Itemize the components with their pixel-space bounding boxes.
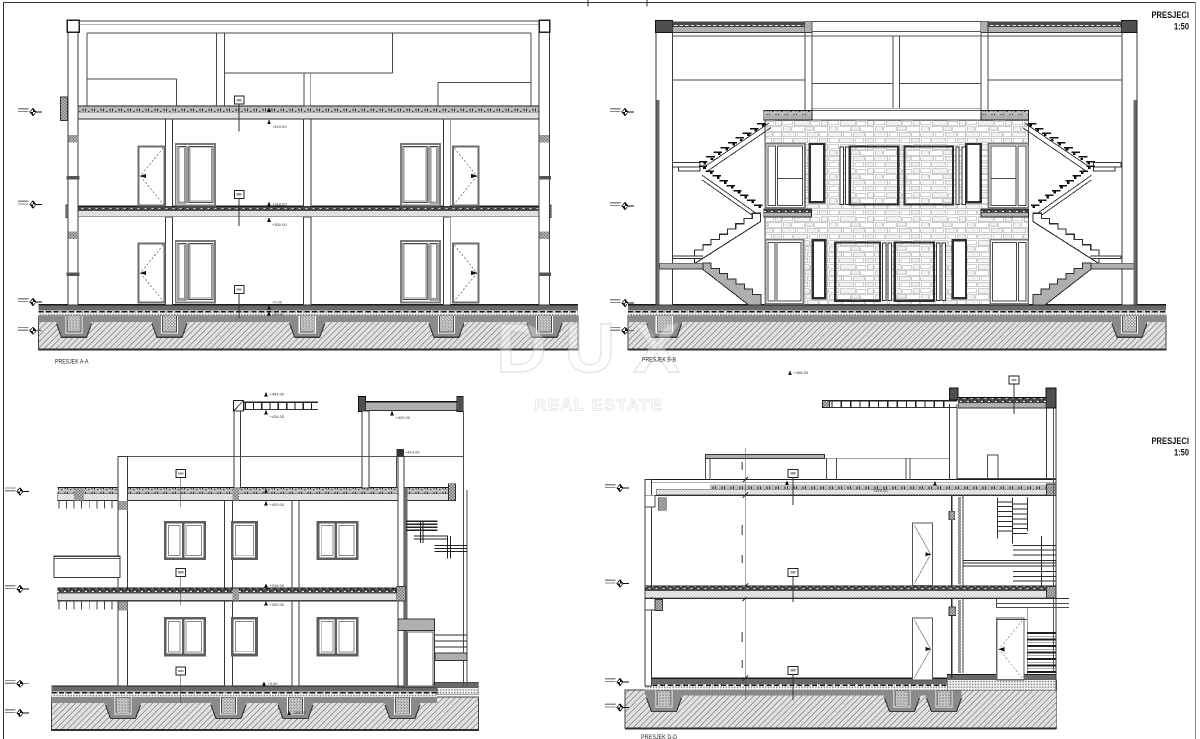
svg-text:PRESJEK B-B: PRESJEK B-B [642,357,676,364]
svg-text:+429.00: +429.00 [396,415,411,420]
svg-text:REAL ESTATE: REAL ESTATE [534,397,663,415]
svg-text:+429.00: +429.00 [873,488,888,493]
svg-text:+0.00: +0.00 [268,681,279,686]
svg-text:+454.00: +454.00 [270,391,285,396]
svg-text:+318.00: +318.00 [272,202,287,207]
svg-text:-20.00: -20.00 [272,312,284,317]
svg-text:1:50: 1:50 [1174,21,1189,31]
svg-text:1:50: 1:50 [1174,447,1189,457]
svg-text:+419.00: +419.00 [272,124,287,129]
svg-text:PRESJECI: PRESJECI [1152,10,1190,20]
svg-text:+300.00: +300.00 [272,222,287,227]
svg-text:PRESJEK D-D: PRESJEK D-D [641,734,677,739]
svg-text:PRESJECI: PRESJECI [1152,436,1190,446]
svg-text:+458.00: +458.00 [794,370,809,375]
svg-text:+429.00: +429.00 [270,502,285,507]
svg-text:DUX: DUX [496,309,698,387]
svg-text:-105.00: -105.00 [293,710,307,715]
svg-text:+318.00: +318.00 [270,583,285,588]
svg-text:+428.00: +428.00 [270,414,285,419]
svg-text:PRESJEK A-A: PRESJEK A-A [55,359,89,366]
svg-text:+300.00: +300.00 [270,602,285,607]
svg-text:+414.00: +414.00 [405,450,420,455]
svg-text:+0.00: +0.00 [272,300,283,305]
